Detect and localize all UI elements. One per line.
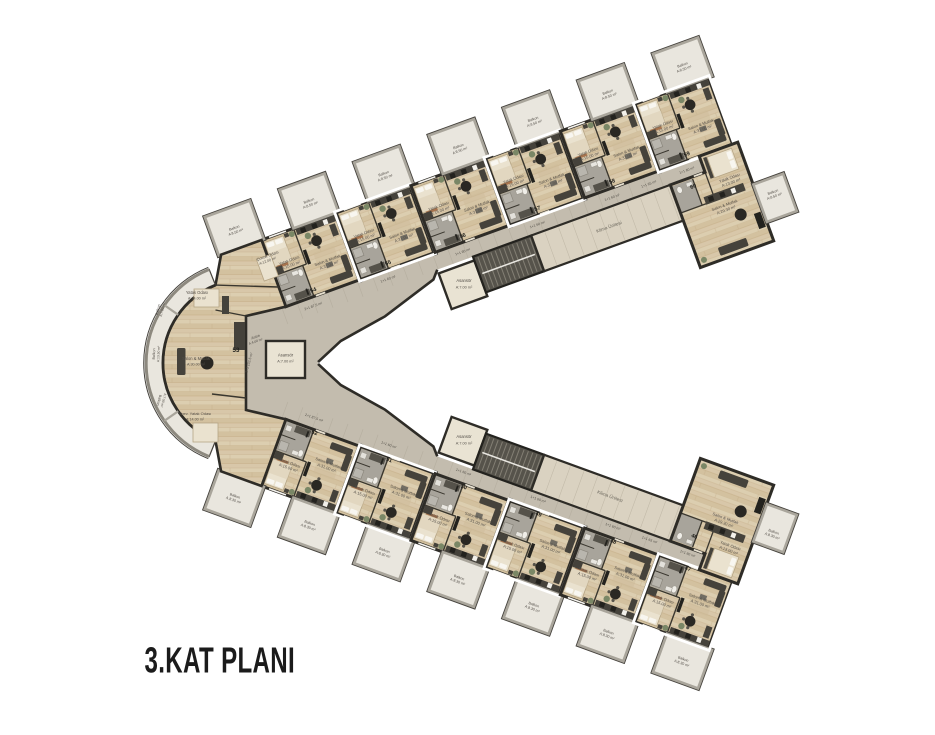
svg-text:Asansör: Asansör <box>278 353 294 358</box>
svg-text:Asansör: Asansör <box>456 278 472 283</box>
svg-text:3.KAT PLANI: 3.KAT PLANI <box>145 641 296 681</box>
svg-text:A:14.00 m²: A:14.00 m² <box>188 297 207 301</box>
svg-text:A:7.00 m²: A:7.00 m² <box>456 286 473 290</box>
svg-text:Salon & Mutfak: Salon & Mutfak <box>182 356 211 361</box>
svg-text:A:7.00 m²: A:7.00 m² <box>456 442 473 446</box>
svg-text:Ebev. Yatak Odası: Ebev. Yatak Odası <box>179 411 212 416</box>
svg-text:A:7.00 m²: A:7.00 m² <box>277 360 294 364</box>
svg-text:A:14.00 m²: A:14.00 m² <box>186 418 205 422</box>
svg-text:Asansör: Asansör <box>456 434 472 439</box>
svg-text:A:30.00 m²: A:30.00 m² <box>187 363 206 367</box>
svg-text:Yatak Odası: Yatak Odası <box>186 290 208 295</box>
svg-text:53: 53 <box>233 347 240 354</box>
